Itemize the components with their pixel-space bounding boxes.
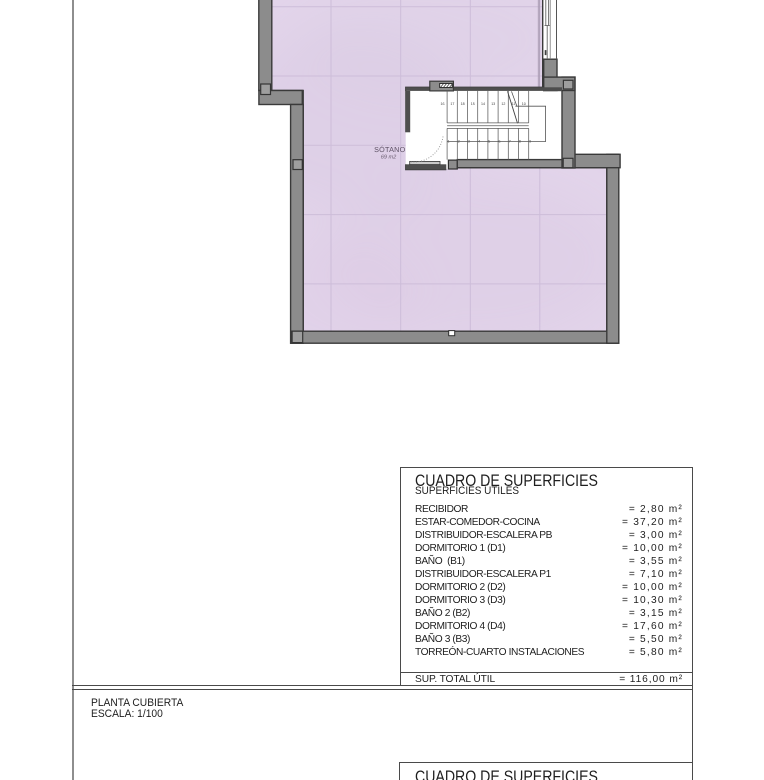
svg-text:14: 14: [481, 102, 485, 106]
svg-text:18: 18: [461, 102, 465, 106]
svg-text:17: 17: [450, 102, 454, 106]
svg-text:12: 12: [501, 102, 505, 106]
svg-text:69 m2: 69 m2: [381, 154, 397, 160]
svg-text:SÓTANO: SÓTANO: [374, 145, 405, 154]
svg-text:15: 15: [471, 102, 475, 106]
svg-text:13: 13: [491, 102, 495, 106]
svg-text:10: 10: [522, 102, 526, 106]
svg-text:16: 16: [441, 102, 445, 106]
